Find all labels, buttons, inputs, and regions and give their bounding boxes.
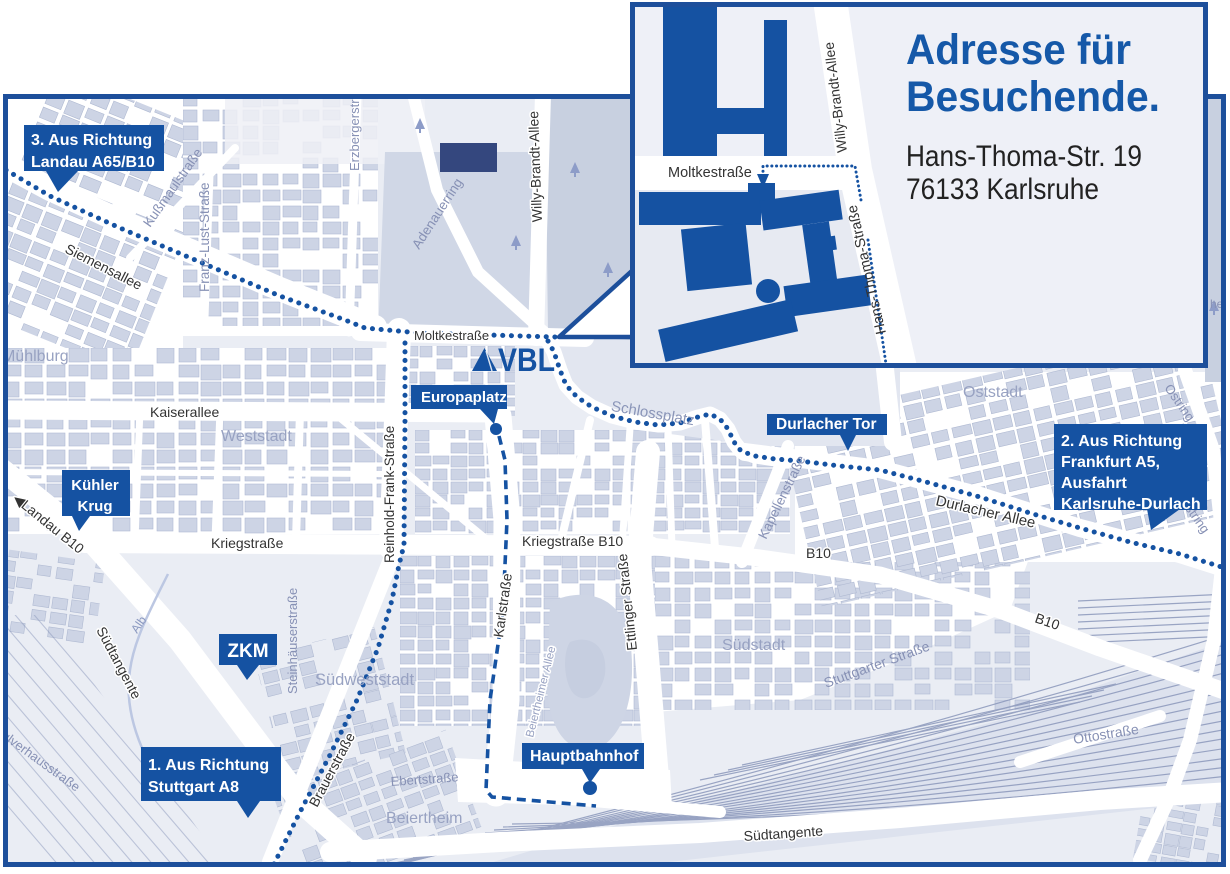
svg-text:Hans-Thoma-Str. 19: Hans-Thoma-Str. 19: [906, 140, 1142, 173]
svg-text:Mühlburg: Mühlburg: [2, 348, 69, 365]
svg-text:Beiertheim: Beiertheim: [386, 810, 462, 827]
svg-text:Moltkestraße: Moltkestraße: [668, 165, 752, 181]
svg-text:Ausfahrt: Ausfahrt: [1061, 475, 1127, 492]
svg-text:Weststadt: Weststadt: [221, 428, 292, 445]
svg-text:Reinhold-Frank-Straße: Reinhold-Frank-Straße: [382, 426, 397, 563]
svg-text:Europaplatz: Europaplatz: [421, 389, 507, 406]
svg-text:Südweststadt: Südweststadt: [315, 671, 414, 689]
svg-text:VBL: VBL: [498, 342, 555, 378]
svg-text:Kriegstraße B10: Kriegstraße B10: [522, 533, 623, 549]
svg-text:Moltkestraße: Moltkestraße: [414, 328, 489, 343]
svg-text:Kühler: Kühler: [71, 477, 119, 494]
svg-text:Durlacher Tor: Durlacher Tor: [776, 416, 877, 433]
svg-text:2. Aus Richtung: 2. Aus Richtung: [1061, 433, 1182, 450]
svg-text:Besuchende.: Besuchende.: [906, 73, 1160, 121]
svg-text:Kriegstraße: Kriegstraße: [211, 535, 284, 551]
svg-text:Adresse für: Adresse für: [906, 26, 1131, 74]
svg-text:Landau A65/B10: Landau A65/B10: [31, 154, 155, 171]
svg-text:Frankfurt A5,: Frankfurt A5,: [1061, 454, 1160, 471]
svg-text:76133 Karlsruhe: 76133 Karlsruhe: [906, 173, 1099, 206]
svg-text:Franz-Lust-Straße: Franz-Lust-Straße: [197, 182, 212, 292]
svg-text:Krug: Krug: [78, 498, 113, 515]
svg-text:ZKM: ZKM: [227, 641, 268, 662]
svg-text:B10: B10: [806, 545, 831, 561]
svg-text:Kaiserallee: Kaiserallee: [150, 404, 219, 420]
svg-text:Hauptbahnhof: Hauptbahnhof: [530, 748, 639, 765]
svg-text:Oststadt: Oststadt: [963, 384, 1023, 401]
svg-text:3. Aus Richtung: 3. Aus Richtung: [31, 132, 152, 149]
svg-text:Karlsruhe-Durlach: Karlsruhe-Durlach: [1061, 496, 1201, 513]
svg-text:Steinhäuserstraße: Steinhäuserstraße: [285, 588, 300, 694]
svg-text:1. Aus Richtung: 1. Aus Richtung: [148, 757, 269, 774]
svg-text:Stuttgart A8: Stuttgart A8: [148, 779, 239, 796]
svg-text:Südstadt: Südstadt: [722, 637, 786, 654]
